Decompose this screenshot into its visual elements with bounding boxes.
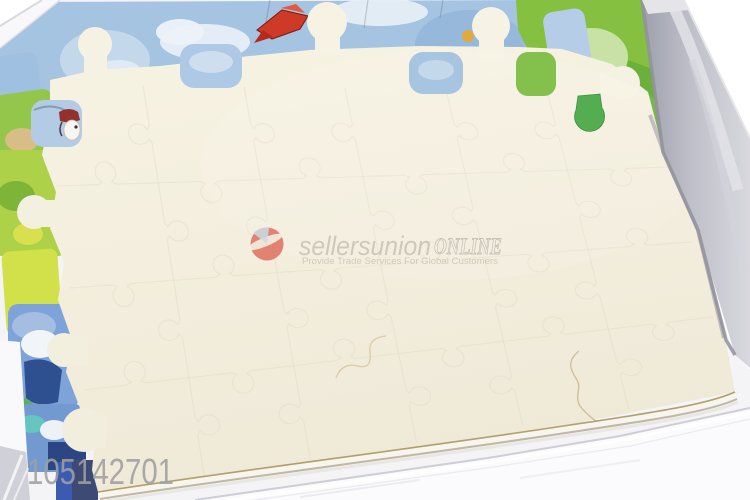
svg-text:105142701: 105142701 (27, 451, 174, 492)
svg-text:Provide Trade Services For Glo: Provide Trade Services For Global Custom… (302, 256, 499, 266)
